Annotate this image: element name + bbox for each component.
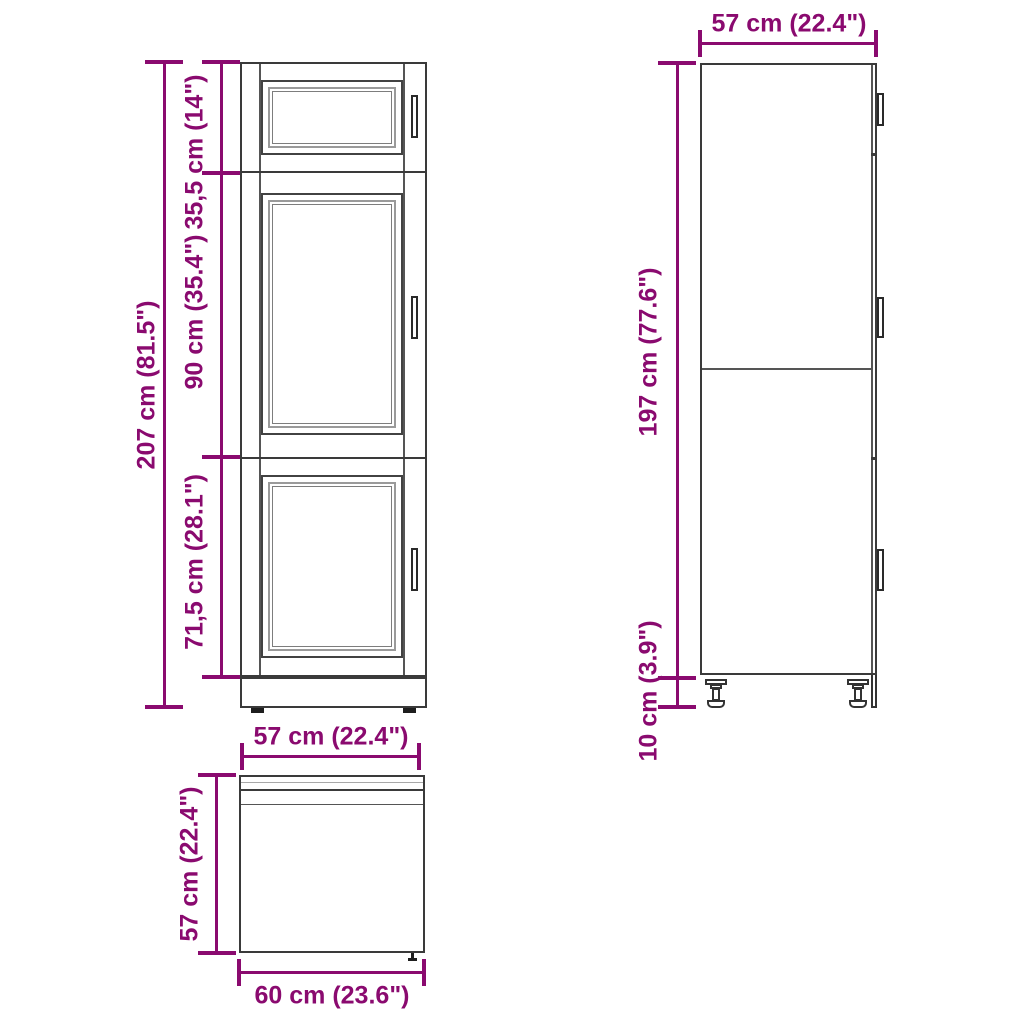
dim-tick bbox=[237, 959, 241, 986]
side-middle-handle bbox=[877, 297, 884, 338]
dim-tick bbox=[422, 959, 426, 986]
side-leg-height-label: 10 cm (3.9") bbox=[637, 620, 662, 761]
dim-tick bbox=[240, 743, 244, 770]
top-outer-width-label: 60 cm (23.6") bbox=[255, 984, 410, 1009]
foot-base bbox=[849, 700, 867, 708]
dim-tick bbox=[145, 60, 183, 64]
dim-tick bbox=[658, 61, 696, 65]
dim-tick bbox=[202, 675, 240, 679]
front-bottom-section-label: 71,5 cm (28.1") bbox=[183, 474, 208, 650]
top-inner-width-label: 57 cm (22.4") bbox=[254, 725, 409, 750]
top-handle-end bbox=[408, 958, 417, 961]
door-panel-frame-inner bbox=[272, 91, 392, 144]
front-middle-section-label: 90 cm (35.4") bbox=[183, 235, 208, 390]
front-foot-right bbox=[403, 708, 416, 713]
dim-tick bbox=[658, 676, 696, 680]
top-inner-width-dim-line bbox=[242, 755, 420, 758]
dim-tick bbox=[145, 705, 183, 709]
front-plinth bbox=[240, 677, 427, 708]
top-back-panel-line-3 bbox=[241, 804, 423, 805]
top-back-panel-line-2 bbox=[241, 789, 423, 791]
side-depth-label: 57 cm (22.4") bbox=[712, 12, 867, 37]
front-total-height-label: 207 cm (81.5") bbox=[135, 301, 160, 470]
foot-base bbox=[707, 700, 725, 708]
front-foot-left bbox=[251, 708, 264, 713]
dim-tick bbox=[417, 743, 421, 770]
door-panel-frame-inner bbox=[272, 486, 392, 647]
dim-tick bbox=[698, 30, 702, 57]
side-door-gap-bottom bbox=[871, 457, 877, 460]
side-height-label: 197 cm (77.6") bbox=[637, 268, 662, 437]
side-kickboard bbox=[871, 675, 877, 708]
front-division-line-bottom bbox=[242, 457, 425, 459]
top-back-panel-line-1 bbox=[241, 782, 423, 783]
side-divider-line bbox=[702, 368, 872, 370]
dim-tick bbox=[198, 951, 236, 955]
top-depth-label: 57 cm (22.4") bbox=[178, 787, 203, 942]
front-top-door bbox=[261, 80, 403, 155]
side-door-gap-top bbox=[871, 153, 877, 156]
front-middle-door bbox=[261, 193, 403, 435]
dim-tick bbox=[874, 30, 878, 57]
side-bottom-handle bbox=[877, 549, 884, 591]
front-right-stile bbox=[403, 64, 405, 675]
front-bottom-door-handle bbox=[411, 548, 418, 591]
dim-tick bbox=[202, 60, 240, 64]
top-cabinet-outline bbox=[239, 775, 425, 953]
side-door-strip bbox=[871, 65, 873, 673]
side-depth-dim-line bbox=[700, 42, 877, 45]
front-top-section-label: 35,5 cm (14") bbox=[183, 75, 208, 230]
top-depth-dim-line bbox=[215, 775, 218, 953]
front-division-line-top bbox=[242, 171, 425, 173]
door-panel-frame-inner bbox=[272, 204, 392, 424]
front-middle-door-handle bbox=[411, 296, 418, 339]
dim-tick bbox=[202, 455, 240, 459]
front-bottom-door bbox=[261, 475, 403, 658]
dimension-diagram: 207 cm (81.5") 35,5 cm (14") 90 cm (35.4… bbox=[0, 0, 1024, 1024]
side-height-dim-line bbox=[676, 63, 679, 708]
dim-tick bbox=[198, 773, 236, 777]
top-outer-width-dim-line bbox=[239, 971, 425, 974]
front-total-height-dim-line bbox=[163, 62, 166, 707]
side-top-handle bbox=[877, 93, 884, 126]
dim-tick bbox=[658, 705, 696, 709]
front-sections-dim-line bbox=[220, 62, 223, 677]
front-top-door-handle bbox=[411, 95, 418, 138]
